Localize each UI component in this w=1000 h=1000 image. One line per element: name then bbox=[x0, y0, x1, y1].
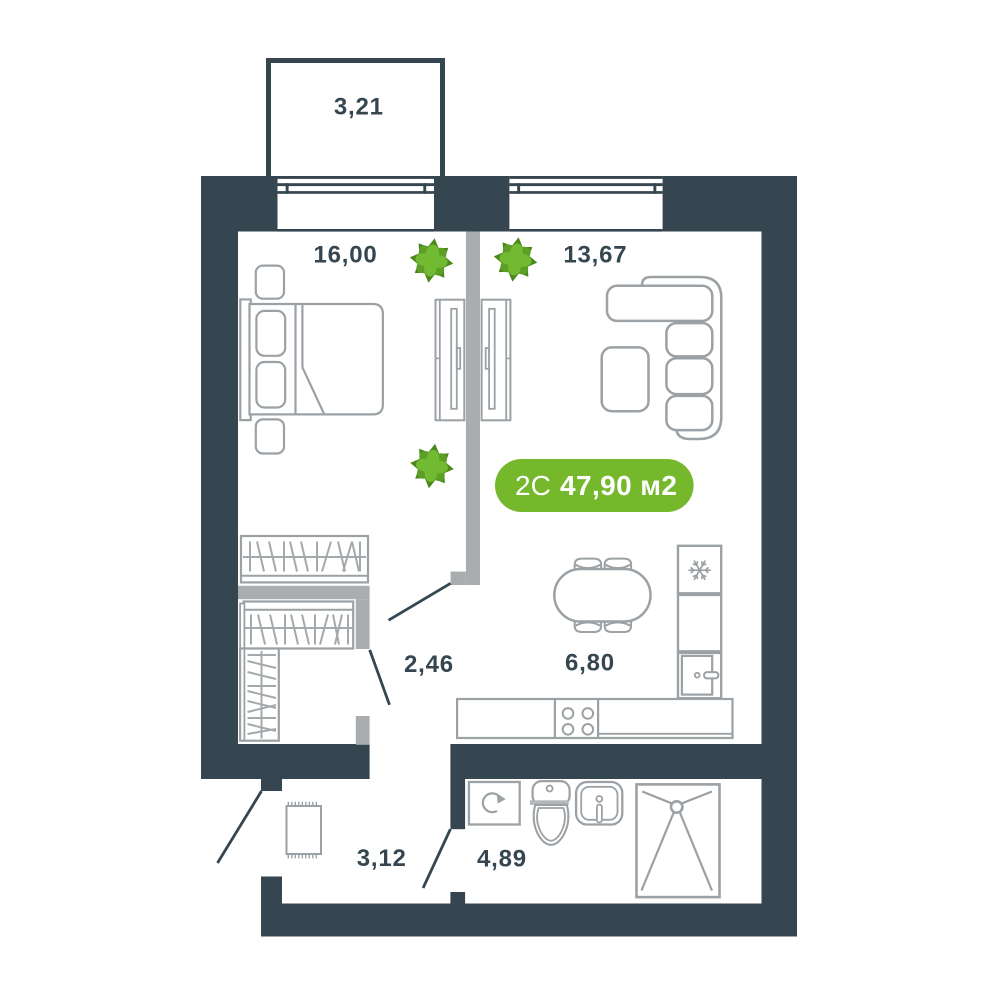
svg-text:3,21: 3,21 bbox=[334, 94, 384, 121]
svg-text:2С: 2С bbox=[515, 470, 551, 501]
svg-text:13,67: 13,67 bbox=[563, 241, 627, 268]
svg-text:2,46: 2,46 bbox=[404, 651, 454, 678]
svg-text:3,12: 3,12 bbox=[357, 845, 407, 872]
svg-text:47,90 м2: 47,90 м2 bbox=[560, 470, 677, 501]
svg-text:16,00: 16,00 bbox=[313, 241, 377, 268]
svg-text:4,89: 4,89 bbox=[477, 846, 527, 873]
svg-text:6,80: 6,80 bbox=[565, 650, 615, 677]
